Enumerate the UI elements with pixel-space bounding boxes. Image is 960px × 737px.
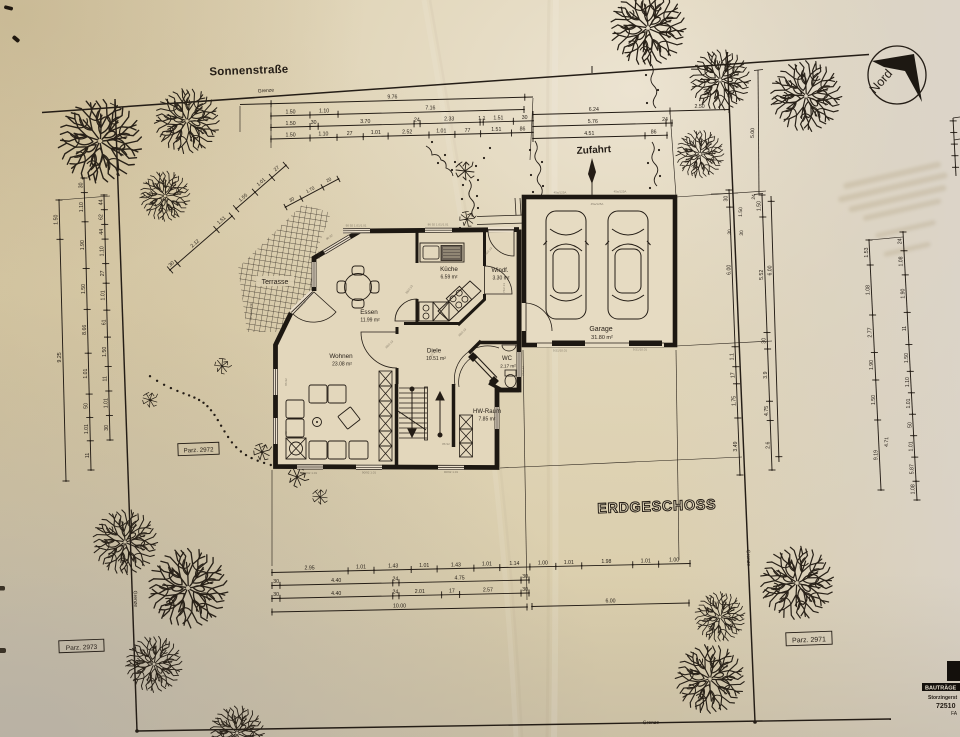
svg-text:86: 86 [651, 129, 657, 135]
svg-text:1.01: 1.01 [103, 398, 109, 408]
svg-text:Küche: Küche [440, 266, 458, 273]
svg-text:1.01: 1.01 [908, 441, 914, 451]
svg-text:HW-Raum: HW-Raum [473, 409, 501, 415]
svg-text:1.01: 1.01 [419, 563, 429, 569]
svg-text:17: 17 [449, 588, 455, 594]
svg-text:2.77: 2.77 [868, 327, 874, 337]
svg-text:5.52: 5.52 [759, 270, 765, 280]
svg-text:30: 30 [739, 230, 745, 236]
svg-text:9.25: 9.25 [57, 352, 63, 362]
svg-text:1.10: 1.10 [318, 132, 328, 138]
svg-text:90 92 1.01/1.01: 90 92 1.01/1.01 [346, 224, 367, 228]
svg-text:30: 30 [78, 182, 84, 188]
svg-text:1.51: 1.51 [493, 116, 503, 122]
svg-text:1.14: 1.14 [509, 561, 519, 567]
svg-text:24: 24 [662, 117, 668, 123]
svg-text:FA: FA [951, 711, 958, 717]
svg-text:4.40: 4.40 [331, 578, 341, 584]
svg-text:5.76: 5.76 [588, 119, 598, 125]
svg-text:6.00: 6.00 [605, 599, 615, 605]
svg-text:1.08: 1.08 [899, 256, 905, 266]
svg-text:1.90: 1.90 [80, 240, 86, 250]
svg-text:44: 44 [99, 229, 105, 235]
svg-text:Wohnen: Wohnen [329, 353, 353, 360]
svg-text:30: 30 [104, 425, 110, 431]
svg-text:Windf.: Windf. [491, 268, 508, 274]
svg-text:30: 30 [762, 338, 768, 344]
svg-text:Parz. 2971: Parz. 2971 [792, 636, 826, 644]
svg-text:9.51/10.01: 9.51/10.01 [633, 348, 648, 352]
svg-text:1.00: 1.00 [669, 558, 679, 564]
svg-text:11: 11 [103, 376, 109, 381]
svg-text:1.43: 1.43 [388, 564, 398, 570]
svg-text:1.53: 1.53 [864, 247, 870, 257]
svg-text:6.00: 6.00 [726, 265, 732, 275]
svg-text:2.17 m²: 2.17 m² [500, 364, 516, 369]
svg-text:1.51: 1.51 [491, 127, 501, 133]
svg-text:90/92 1.01: 90/92 1.01 [362, 471, 377, 475]
svg-text:61: 61 [101, 319, 107, 325]
svg-text:86 92: 86 92 [284, 431, 288, 439]
svg-text:1.90: 1.90 [869, 360, 875, 370]
svg-text:9.76: 9.76 [387, 94, 397, 100]
svg-text:74/2.13: 74/2.13 [521, 366, 525, 376]
svg-text:2.50: 2.50 [695, 104, 705, 110]
svg-text:1.01: 1.01 [436, 129, 446, 135]
svg-text:24: 24 [414, 118, 420, 124]
svg-text:1.10: 1.10 [905, 377, 911, 387]
svg-text:2.01: 2.01 [415, 589, 425, 595]
svg-text:1.01: 1.01 [564, 560, 574, 566]
svg-text:30: 30 [273, 579, 279, 585]
svg-text:31.80 m²: 31.80 m² [591, 335, 613, 341]
svg-text:3.9: 3.9 [763, 371, 769, 378]
svg-text:6.24: 6.24 [589, 107, 599, 113]
svg-text:Storzingerst: Storzingerst [928, 695, 958, 701]
svg-text:30: 30 [727, 229, 733, 235]
svg-text:11.99 m²: 11.99 m² [360, 318, 380, 324]
svg-text:1.08: 1.08 [866, 285, 872, 295]
svg-text:4.40: 4.40 [331, 591, 341, 597]
svg-text:1.01: 1.01 [482, 562, 492, 568]
svg-text:86 92: 86 92 [317, 251, 321, 259]
svg-text:11: 11 [902, 326, 908, 331]
svg-text:2.95: 2.95 [305, 566, 315, 572]
svg-text:24: 24 [751, 194, 757, 200]
svg-text:1.50: 1.50 [285, 109, 295, 115]
svg-text:8.66: 8.66 [82, 325, 88, 335]
svg-text:1.10: 1.10 [100, 246, 106, 256]
svg-text:6.00: 6.00 [767, 265, 773, 275]
svg-text:4.75: 4.75 [455, 575, 465, 581]
svg-text:Parz. 2973: Parz. 2973 [66, 644, 98, 652]
svg-text:74/2.13: 74/2.13 [502, 283, 506, 293]
svg-text:24: 24 [393, 577, 399, 583]
svg-text:3.70: 3.70 [360, 119, 370, 125]
svg-text:1.50: 1.50 [102, 347, 108, 357]
svg-text:1.50: 1.50 [54, 215, 60, 225]
svg-text:5.87: 5.87 [910, 464, 916, 474]
svg-text:2.57: 2.57 [483, 588, 493, 594]
svg-text:86: 86 [520, 127, 526, 133]
svg-text:90/92 1.01: 90/92 1.01 [303, 471, 318, 475]
svg-text:4.71: 4.71 [884, 437, 890, 447]
svg-text:Parz. 2972: Parz. 2972 [183, 446, 214, 454]
svg-text:17: 17 [730, 372, 736, 378]
svg-text:4.51: 4.51 [584, 131, 594, 137]
svg-text:11: 11 [85, 453, 91, 458]
svg-text:1.50: 1.50 [286, 121, 296, 127]
svg-text:1.50: 1.50 [738, 207, 744, 217]
svg-text:3.49: 3.49 [733, 441, 739, 451]
svg-text:1.10: 1.10 [79, 202, 85, 212]
svg-text:86 92 1.01/1.01: 86 92 1.01/1.01 [428, 223, 449, 227]
svg-text:6.59 m²: 6.59 m² [441, 275, 458, 281]
svg-text:1.90: 1.90 [900, 288, 906, 298]
svg-text:Essen: Essen [360, 309, 378, 316]
svg-text:45a/125A: 45a/125A [591, 202, 604, 206]
svg-text:44: 44 [98, 199, 104, 205]
svg-text:50: 50 [907, 422, 913, 428]
svg-text:50: 50 [84, 403, 90, 409]
svg-text:Garage: Garage [589, 326, 612, 333]
svg-text:72510: 72510 [936, 703, 956, 710]
svg-text:30: 30 [522, 574, 528, 580]
svg-text:1.10: 1.10 [319, 108, 329, 114]
svg-text:Zufahrt: Zufahrt [576, 144, 612, 157]
svg-text:1.50: 1.50 [757, 201, 763, 211]
svg-text:1.50: 1.50 [904, 353, 910, 363]
svg-text:1.98: 1.98 [601, 559, 611, 565]
svg-text:1.08: 1.08 [911, 484, 917, 494]
svg-text:1.50: 1.50 [81, 284, 87, 294]
svg-text:30: 30 [522, 587, 528, 593]
svg-text:BAUTRÄGE: BAUTRÄGE [925, 685, 956, 692]
svg-text:1.1: 1.1 [478, 116, 485, 122]
svg-text:2.52: 2.52 [402, 129, 412, 135]
svg-text:3.30 m²: 3.30 m² [493, 276, 510, 282]
svg-text:7.16: 7.16 [425, 106, 435, 112]
svg-text:1.00: 1.00 [538, 561, 548, 567]
svg-text:1.75: 1.75 [731, 396, 737, 406]
svg-text:30: 30 [724, 196, 730, 202]
svg-text:90/92 1.01: 90/92 1.01 [444, 470, 459, 474]
svg-text:1.50: 1.50 [286, 132, 296, 138]
svg-text:Grenze: Grenze [745, 550, 752, 567]
svg-text:Grenze: Grenze [643, 720, 660, 726]
svg-text:30: 30 [273, 592, 279, 598]
svg-text:27: 27 [347, 131, 353, 137]
svg-text:77: 77 [465, 128, 471, 134]
svg-text:1.01: 1.01 [371, 130, 381, 136]
svg-text:4.75: 4.75 [764, 406, 770, 416]
svg-text:9.19: 9.19 [874, 450, 880, 460]
svg-text:1.01: 1.01 [101, 290, 107, 300]
svg-text:1.01: 1.01 [356, 564, 366, 570]
svg-text:1.01: 1.01 [83, 368, 89, 378]
svg-text:1.01: 1.01 [641, 558, 651, 564]
svg-text:86 92: 86 92 [442, 442, 450, 446]
svg-text:1.01: 1.01 [906, 398, 912, 408]
svg-text:1.43: 1.43 [451, 562, 461, 568]
svg-text:86 92: 86 92 [284, 378, 288, 386]
svg-text:5.00: 5.00 [750, 128, 756, 138]
svg-text:WC: WC [502, 356, 513, 362]
svg-text:Grenze: Grenze [132, 591, 139, 608]
svg-text:9.51/10.01: 9.51/10.01 [553, 349, 568, 353]
svg-text:45a/125A: 45a/125A [554, 191, 567, 195]
svg-text:27: 27 [100, 270, 106, 276]
svg-text:1.1: 1.1 [730, 353, 736, 360]
svg-text:Terrasse OK: Terrasse OK [249, 302, 254, 321]
svg-text:2.33: 2.33 [444, 117, 454, 123]
svg-text:30: 30 [311, 120, 317, 126]
svg-text:7.85 m²: 7.85 m² [479, 417, 496, 423]
svg-text:24: 24 [393, 590, 399, 596]
svg-text:Terrasse: Terrasse [262, 279, 289, 286]
svg-text:2.6: 2.6 [765, 441, 771, 448]
svg-text:1.01: 1.01 [84, 424, 90, 434]
svg-text:10.00: 10.00 [393, 603, 406, 609]
svg-text:Grenze: Grenze [258, 87, 275, 94]
svg-text:62: 62 [99, 214, 105, 220]
svg-text:24: 24 [898, 238, 904, 244]
svg-text:30: 30 [522, 115, 528, 121]
svg-text:45a/125A: 45a/125A [614, 190, 627, 194]
svg-text:1.50: 1.50 [871, 395, 877, 405]
svg-text:23.08 m²: 23.08 m² [332, 362, 352, 368]
